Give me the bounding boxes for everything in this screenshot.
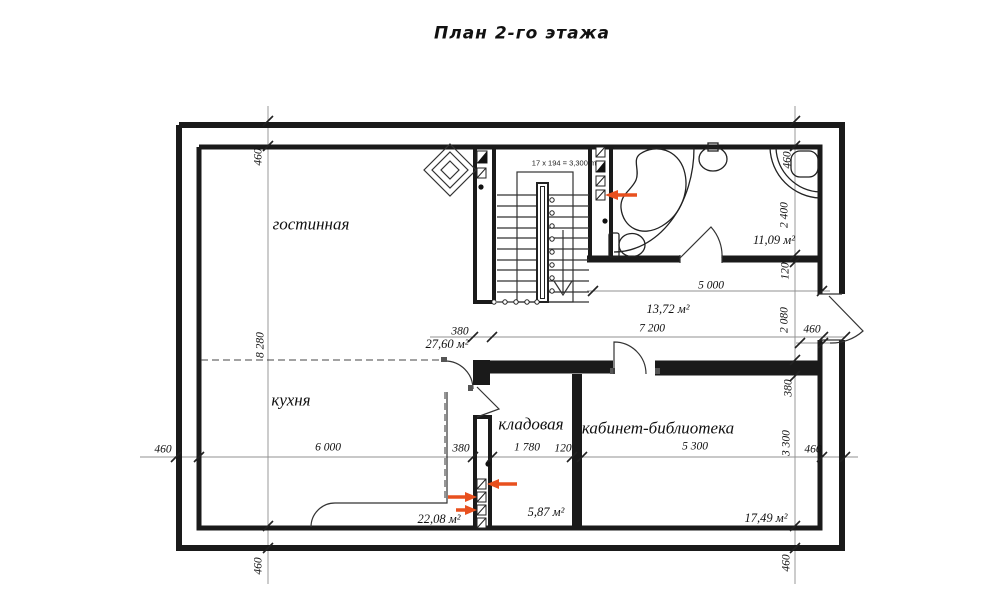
dim-office-width: 5 300 <box>682 441 708 453</box>
staircase <box>492 172 589 304</box>
dim-interior-height: 8 280 <box>255 332 267 358</box>
door-kitchen-opening <box>441 357 473 391</box>
switch-symbol-icon <box>477 518 486 528</box>
dim-bottom-wall-left: 460 <box>154 444 171 456</box>
dim-left-wall-bottom: 460 <box>253 557 265 574</box>
zone-boundary-dashed <box>201 360 445 502</box>
door-storage <box>477 387 499 417</box>
toilet <box>609 233 645 257</box>
dim-bathroom-width: 5 000 <box>698 280 724 292</box>
area-label-storage: 5,87 м² <box>528 506 565 519</box>
junction-dot <box>485 461 490 466</box>
dim-storage-width: 1 780 <box>514 442 540 454</box>
switch-symbol-icon <box>477 479 486 489</box>
stair-direction-arrow <box>554 230 572 295</box>
dim-balcony-door: 460 <box>803 324 820 336</box>
floor-plan-sheet: План 2-го этажа 17 x 194 = 3,300 m гости… <box>0 0 1000 608</box>
switch-symbol-icon <box>477 492 486 502</box>
room-label-office: кабинет-библиотека <box>582 420 734 437</box>
dimension-ticks <box>171 116 850 553</box>
switch-symbol-icon <box>477 505 486 515</box>
stair-formula-note: 17 x 194 = 3,300 m <box>532 159 596 167</box>
page-title: План 2-го этажа <box>434 26 610 43</box>
dim-bathroom-depth: 2 400 <box>779 202 791 228</box>
door-office <box>614 342 646 374</box>
dim-stair-wall: 380 <box>451 326 468 338</box>
dim-divider-wall: 120 <box>554 443 571 455</box>
room-label-living: гостинная <box>273 216 350 233</box>
junction-dot <box>478 184 483 189</box>
area-label-hall: 13,72 м² <box>647 303 690 316</box>
dim-left-wall-top: 460 <box>253 148 265 165</box>
switch-symbol-icon <box>596 190 605 200</box>
junction-dot <box>602 218 607 223</box>
room-label-kitchen: кухня <box>271 392 310 409</box>
dim-kitchen-width: 6 000 <box>315 442 341 454</box>
room-label-storage: кладовая <box>498 416 563 433</box>
area-label-bathroom: 11,09 м² <box>753 234 795 247</box>
dim-bottom-wall-right: 460 <box>804 444 821 456</box>
kitchen-counter <box>311 392 447 527</box>
switch-symbol-icon <box>477 168 486 178</box>
switch-symbol-half-icon <box>477 151 487 163</box>
area-label-kitchen: 22,08 м² <box>418 513 461 526</box>
floor-plan-drawing <box>0 0 1000 608</box>
area-label-living: 27,60 м² <box>426 338 469 351</box>
dim-hall-depth: 2 080 <box>779 307 791 333</box>
switch-symbol-half-icon <box>596 161 605 172</box>
dim-right-wall-bottom: 460 <box>781 554 793 571</box>
bathtub <box>614 148 694 252</box>
dim-office-wall: 380 <box>783 379 795 396</box>
area-label-office: 17,49 м² <box>745 512 788 525</box>
dim-right-wall-top: 460 <box>782 151 794 168</box>
dim-hall-width: 7 200 <box>639 323 665 335</box>
fireplace <box>424 144 476 196</box>
door-bathroom <box>680 227 722 258</box>
marker-arrow-icon <box>448 492 477 502</box>
switch-symbol-icon <box>596 176 605 186</box>
switch-symbol-icon <box>596 147 605 157</box>
dim-bathroom-wall: 120 <box>780 262 792 279</box>
dim-bottom-stair-wall: 380 <box>452 443 469 455</box>
dim-office-depth: 3 300 <box>781 430 793 456</box>
